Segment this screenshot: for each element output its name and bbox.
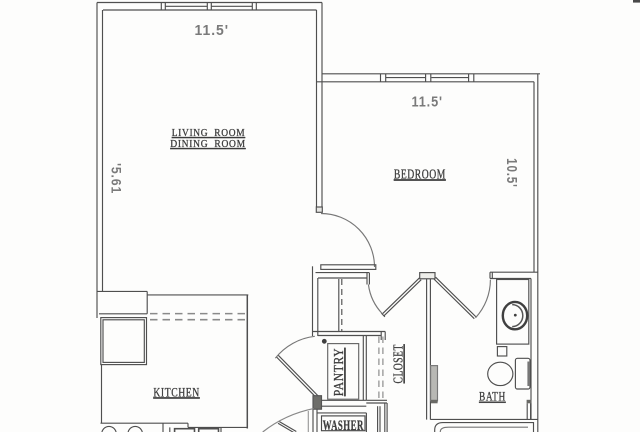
svg-text:11.5': 11.5' — [411, 95, 443, 111]
svg-text:'5.61: '5.61 — [108, 163, 124, 194]
svg-text:DINING ROOM: DINING ROOM — [170, 138, 246, 150]
svg-text:10.5': 10.5' — [503, 158, 519, 188]
svg-text:CLOSET: CLOSET — [391, 344, 406, 383]
svg-text:11.5': 11.5' — [195, 23, 230, 39]
svg-text:PANTRY: PANTRY — [332, 348, 347, 397]
svg-text:KITCHEN: KITCHEN — [153, 384, 200, 399]
svg-text:BEDROOM: BEDROOM — [394, 167, 446, 182]
svg-text:WASHER: WASHER — [323, 418, 364, 432]
svg-text:BATH: BATH — [479, 389, 506, 404]
